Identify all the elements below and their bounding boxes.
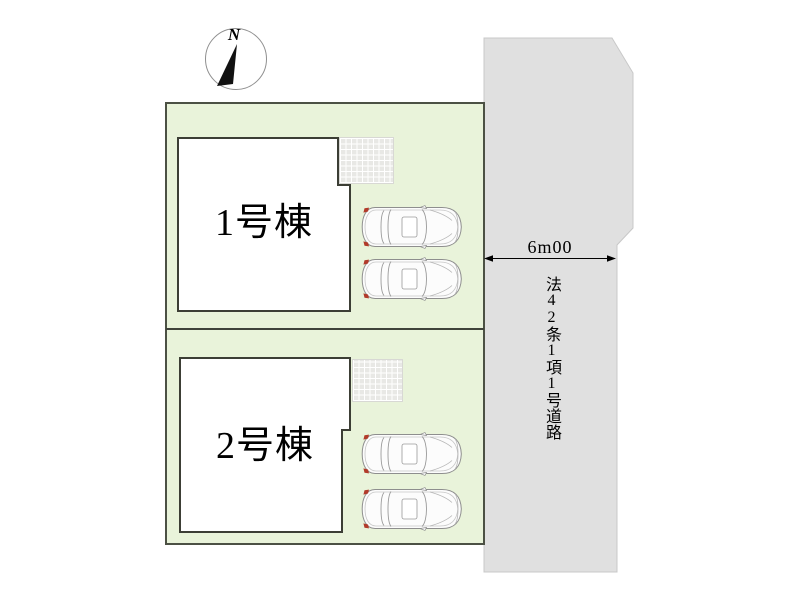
car-top-view-icon bbox=[362, 258, 461, 301]
building-2-label: 2号棟 bbox=[180, 427, 350, 465]
road-width-label: 6m00 bbox=[484, 238, 616, 256]
site-plan-drawing: N 1号棟 2号棟 6m00 法42条1項1号道路 bbox=[0, 0, 800, 600]
road-name-label: 法42条1項1号道路 bbox=[543, 276, 559, 440]
car-top-view-icon bbox=[362, 206, 461, 249]
building-1-label: 1号棟 bbox=[178, 204, 350, 242]
compass-needle bbox=[217, 44, 237, 86]
car-top-view-icon bbox=[362, 433, 461, 476]
compass-north-label: N bbox=[222, 26, 246, 43]
terrace-grid-2 bbox=[352, 359, 403, 402]
terrace-grid-1 bbox=[339, 137, 394, 184]
car-top-view-icon bbox=[362, 488, 461, 531]
site-plan-canvas bbox=[0, 0, 800, 600]
